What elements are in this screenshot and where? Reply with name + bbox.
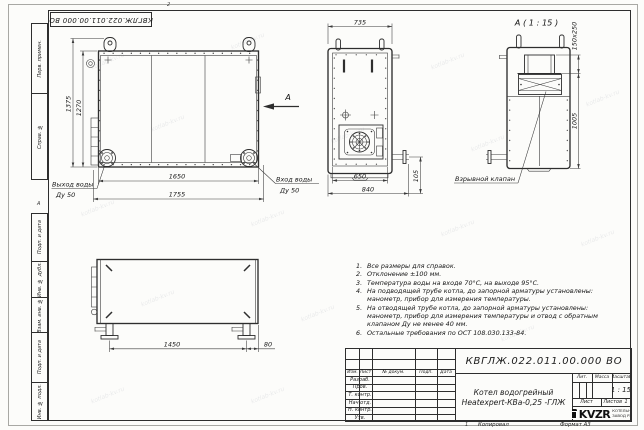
note-text: Все размеры для справок. (367, 262, 619, 270)
row-razrab: Разраб. (346, 376, 372, 384)
outlet-label: Выход воды (52, 181, 93, 189)
outlet-dn: Ду 50 (55, 191, 75, 199)
detail-title: А ( 1 : 15 ) (514, 18, 558, 28)
col-list: Лист (359, 369, 372, 376)
side-bracket (91, 118, 99, 165)
note-text: Остальные требования по ОСТ 108.030.133-… (367, 329, 619, 337)
lifting-lug (104, 38, 116, 52)
note-text: Отклонение ±100 мм. (367, 270, 619, 278)
note-item: 1.Все размеры для справок. (353, 262, 619, 270)
kvzr-logo-text: KVZR (579, 408, 610, 421)
valve-callout: Взрывной клапан (454, 92, 546, 184)
valve-label: Взрывной клапан (455, 175, 515, 183)
inlet-dn: Ду 50 (279, 187, 299, 195)
dim-735: 735 (354, 18, 366, 26)
chimney-box (525, 55, 555, 74)
dim-150x250: 150x250 (571, 22, 579, 51)
view-arrow-a: А (263, 92, 299, 110)
row-nkontr: Н. контр. (346, 407, 372, 415)
document-name: Котел водогрейный Heatexpert-КВа-0,25 -Г… (455, 373, 572, 422)
col-podp: Подп. (415, 369, 437, 376)
lifting-lug (560, 35, 565, 48)
kvzr-logo: KVZR КОТЕЛЬНЫЙ ЗАВОД РЭП (572, 408, 630, 421)
note-item: 5.На отводящей трубе котла, до запорной … (353, 304, 619, 329)
dim-1450: 1450 (164, 341, 181, 349)
drawing-sheet: kotlab-kv.ru kotlab-kv.ru kotlab-kv.ru k… (0, 0, 644, 430)
scale-value: 1 : 15 (612, 382, 630, 398)
document-name-line2: Heatexpert-КВа-0,25 -ГЛЖ (462, 398, 566, 407)
lit-label: Лит. (572, 373, 592, 382)
side-view: 735 650 840 105 (328, 18, 423, 196)
dim-105: 105 (412, 170, 420, 182)
row-prov: Пров. (346, 384, 372, 392)
row-tkontr: Т. контр. (346, 391, 372, 399)
title-block-designation: КВГЛЖ.022.011.00.000 ВО (455, 349, 633, 373)
scale-label: Масштаб (612, 373, 630, 382)
dim-1375: 1375 (65, 96, 73, 113)
mass-label: Масса (592, 373, 612, 382)
inlet-flange (231, 150, 258, 167)
copied-label: Копировал (478, 422, 509, 428)
title-block: Изм. Лист № докум. Подп. Дата Разраб. Пр… (345, 348, 632, 422)
note-item: 4.На подводящей трубе котла, до запорной… (353, 287, 619, 304)
center-marks (105, 57, 253, 64)
sheets-value: 1 (624, 399, 627, 405)
outlet-callout: Выход воды Ду 50 (52, 168, 105, 199)
row-nachotd: Нач.отд. (346, 399, 372, 407)
note-number: 1. (353, 262, 367, 270)
document-name-line1: Котел водогрейный (474, 388, 554, 397)
dim-1005: 1005 (571, 113, 579, 130)
inlet-callout: Вход воды Ду 50 (255, 165, 319, 195)
col-data: Дата (437, 369, 455, 376)
front-view: 1375 1270 1650 1755 Выход воды Ду 50 Вхо… (52, 38, 320, 203)
note-item: 2.Отклонение ±100 мм. (353, 270, 619, 278)
boiler-body-bottom (97, 260, 258, 324)
dim-840: 840 (362, 185, 374, 193)
note-text: На отводящей трубе котла, до запорной ар… (367, 304, 619, 329)
dim-80: 80 (264, 341, 272, 349)
boiler-body-detail (507, 48, 570, 169)
company-cell: KVZR КОТЕЛЬНЫЙ ЗАВОД РЭП (572, 406, 630, 422)
note-item: 3.Температура воды на входе 70°С, на вых… (353, 279, 619, 287)
row-utv: Утв. (346, 414, 372, 422)
format-label: Формат А3 (560, 422, 591, 428)
lifting-lug (517, 35, 522, 48)
note-number: 5. (353, 304, 367, 329)
boiler-body-front (99, 51, 259, 167)
explosion-valve (519, 75, 562, 95)
support-legs (95, 324, 255, 340)
company-line2: ЗАВОД РЭП (612, 414, 630, 419)
view-arrow-letter: А (284, 92, 291, 102)
dim-1650: 1650 (169, 173, 186, 181)
kvzr-logo-icon (572, 409, 577, 419)
note-text: На подводящей трубе котла, до запорной а… (367, 287, 619, 304)
col-docnum: № докум. (372, 369, 415, 376)
detail-view-a: А ( 1 : 15 ) (454, 18, 581, 184)
bottom-view: 1450 80 (91, 260, 275, 353)
sheet-label: Лист (572, 398, 601, 406)
corner-marks (106, 265, 250, 318)
lifting-lug (243, 38, 255, 52)
side-pipe-stub (392, 151, 409, 164)
sheets-label: Листов (603, 399, 622, 405)
sheets-cell: Листов 1 (601, 398, 630, 406)
col-izm: Изм. (346, 369, 359, 376)
burner-plate (339, 125, 383, 159)
outlet-flange (99, 150, 116, 167)
dim-1755: 1755 (169, 191, 186, 199)
company-name: КОТЕЛЬНЫЙ ЗАВОД РЭП (612, 409, 630, 418)
note-item: 6.Остальные требования по ОСТ 108.030.13… (353, 329, 619, 337)
note-text: Температура воды на входе 70°С, на выход… (367, 279, 619, 287)
detail-pipe-stub (486, 151, 507, 164)
side-dimensions: 735 650 840 105 (328, 18, 423, 196)
note-number: 4. (353, 287, 367, 304)
note-number: 3. (353, 279, 367, 287)
bottom-side-bracket (91, 267, 97, 315)
note-number: 2. (353, 270, 367, 278)
dim-1270: 1270 (75, 100, 83, 117)
dim-650: 650 (354, 173, 366, 181)
technical-notes: 1.Все размеры для справок. 2.Отклонение … (353, 262, 619, 337)
inlet-label: Вход воды (276, 176, 312, 184)
note-number: 6. (353, 329, 367, 337)
